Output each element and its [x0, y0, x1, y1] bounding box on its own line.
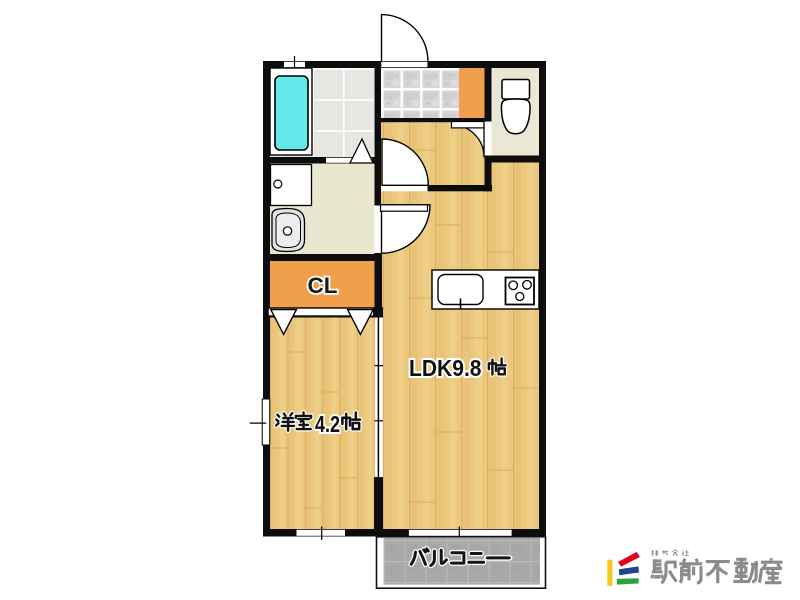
- svg-text:LDK9.8: LDK9.8: [409, 355, 482, 381]
- svg-text:CL: CL: [308, 273, 338, 298]
- svg-text:4.2: 4.2: [315, 411, 340, 437]
